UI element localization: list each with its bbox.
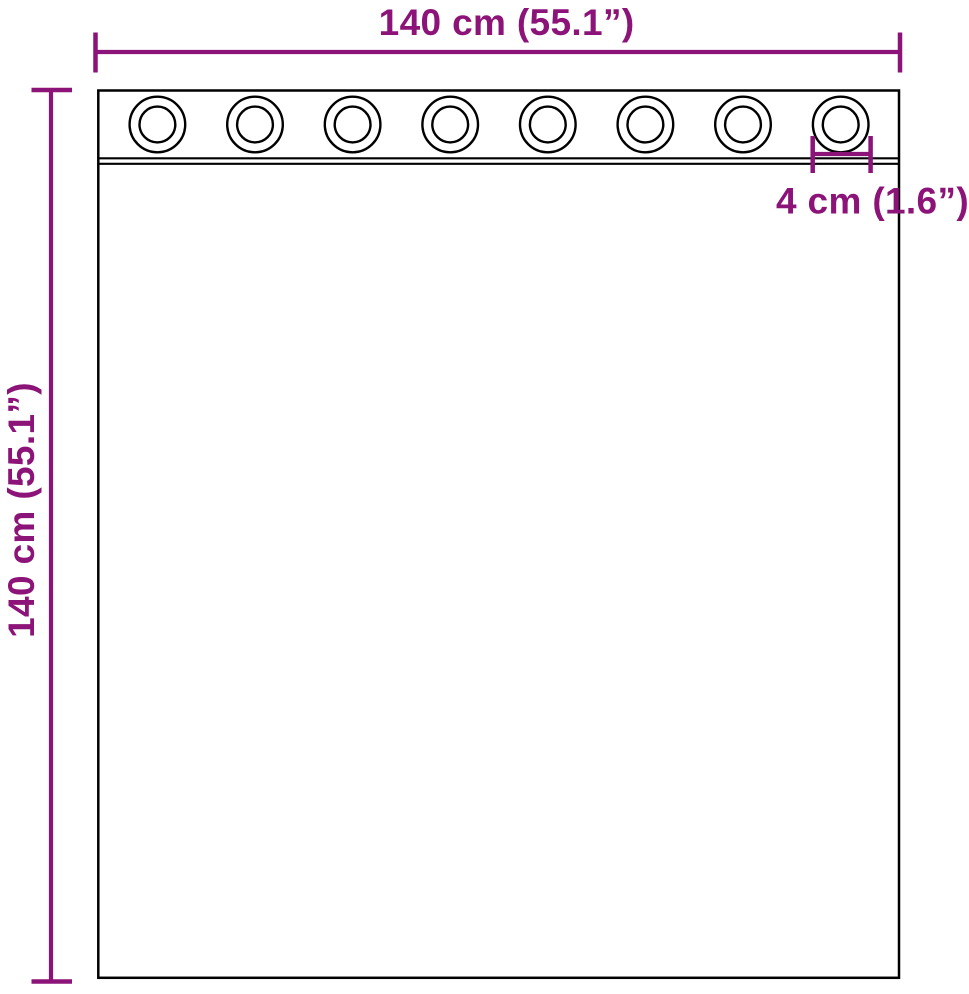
svg-text:140 cm (55.1”): 140 cm (55.1”) bbox=[379, 2, 635, 43]
svg-text:140 cm (55.1”): 140 cm (55.1”) bbox=[1, 382, 42, 638]
svg-text:4 cm (1.6”): 4 cm (1.6”) bbox=[776, 181, 969, 222]
